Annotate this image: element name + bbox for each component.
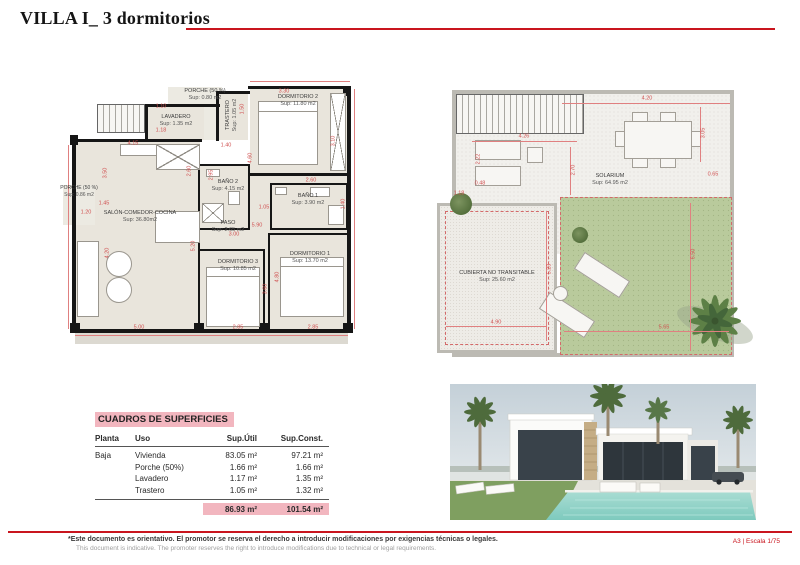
- room-label-porche-top: PORCHE (50 %) Sup: 0.80 m2: [184, 88, 225, 102]
- side-table: [527, 147, 543, 163]
- table-row: Trastero 1.05 m² 1.32 m²: [95, 485, 329, 497]
- chair: [632, 158, 648, 168]
- ground-floor-plan: 4.15 1.10 1.18 1.50 3.30 3.10 3.50 1.45 …: [60, 73, 382, 373]
- room-label-salon: SALÓN-COMEDOR-COCINA Sup: 36.80m2: [104, 210, 176, 224]
- dimension-line: [446, 326, 546, 327]
- wall-segment: [145, 104, 148, 142]
- dim-label: 1.40: [221, 143, 232, 149]
- col-header-const: Sup.Const.: [263, 434, 329, 443]
- dim-label: 2.22: [476, 154, 482, 165]
- title-rule: [186, 28, 775, 30]
- dim-label: 3.10: [331, 136, 337, 147]
- col-header-uso: Uso: [135, 434, 203, 443]
- sink: [275, 187, 287, 195]
- dim-label: 2.85: [308, 325, 319, 331]
- surfaces-table-title: CUADROS DE SUPERFICIES: [95, 412, 234, 427]
- wall-segment: [200, 249, 265, 251]
- dim-label: 5.00: [134, 325, 145, 331]
- pilaster: [259, 323, 269, 333]
- dim-label: 2.70: [571, 165, 577, 176]
- dimension-line: [690, 203, 691, 351]
- plan-sheet: VILLA I_ 3 dormitorios: [0, 0, 800, 565]
- chair: [660, 112, 676, 122]
- wall-segment: [248, 86, 350, 89]
- dim-label: 1.05: [259, 205, 270, 211]
- wall-segment: [248, 165, 250, 229]
- dimension-line: [354, 89, 355, 329]
- page-title: VILLA I_ 3 dormitorios: [20, 8, 210, 29]
- dim-label: 1.18: [454, 191, 465, 197]
- dim-label: 3.05: [701, 128, 707, 139]
- roof-stairs-hatch: [456, 94, 584, 134]
- sheet-info: A3 | Escala 1/75: [660, 538, 780, 545]
- room-label-porche-left: PORCHE (50 %) Sup: 0.86 m2: [60, 185, 98, 198]
- dimension-line: [546, 211, 547, 341]
- footer-rule: [8, 531, 792, 533]
- stairs-hatch: [97, 104, 145, 133]
- room-label-paso: PASO Sup: 2.65 m2: [212, 220, 245, 234]
- dim-label: 1.10: [156, 104, 167, 110]
- pilaster: [343, 323, 353, 333]
- room-label-solarium: SOLARIUM Sup: 64.95 m2: [592, 173, 628, 187]
- pilaster: [70, 323, 80, 333]
- palm-tree-icon: [667, 275, 762, 375]
- dim-label: 2.85: [233, 325, 244, 331]
- room-label-trastero: TRASTERO Sup: 1.05 m2: [225, 99, 239, 132]
- dim-label: 4.15: [128, 141, 139, 147]
- total-const: 101.54 m²: [263, 503, 329, 515]
- dim-label: 5.23: [547, 264, 553, 275]
- dim-label: 4.80: [275, 272, 281, 283]
- dim-label: 1.50: [240, 104, 246, 115]
- chair: [660, 158, 676, 168]
- wall-segment: [248, 173, 348, 176]
- disclaimer-en: This document is indicative. The promote…: [76, 545, 436, 552]
- disclaimer-es: *Este documento es orientativo. El promo…: [68, 536, 498, 543]
- outdoor-table: [624, 121, 692, 159]
- wall-segment: [200, 164, 250, 166]
- dim-label: 1.45: [99, 201, 110, 207]
- sofa: [475, 140, 521, 160]
- roof-plan: 4.20 3.05 0.65 4.26 2.22 2.70 0.48 1.18 …: [432, 85, 792, 370]
- col-header-planta: Planta: [95, 434, 135, 443]
- dim-label: 1.40: [341, 199, 347, 210]
- lounge-chair: [106, 277, 132, 303]
- dim-label: 0.48: [475, 181, 486, 187]
- dim-label: 4.60: [248, 153, 254, 164]
- wardrobe: [330, 93, 346, 171]
- dim-label: 0.65: [708, 172, 719, 178]
- table-body: Baja Vivienda 83.05 m² 97.21 m² Porche (…: [95, 447, 329, 500]
- dim-label: 4.20: [105, 248, 111, 259]
- dim-label: 3.60: [263, 284, 269, 295]
- table-row: Baja Vivienda 83.05 m² 97.21 m²: [95, 450, 329, 462]
- room-label-bano2: BAÑO 2 Sup: 4.15 m2: [212, 179, 245, 193]
- dim-label: 5.20: [191, 241, 197, 252]
- dim-label: 6.50: [691, 249, 697, 260]
- dim-label: 4.26: [519, 134, 530, 140]
- chair: [615, 131, 625, 147]
- dim-label: 2.60: [306, 178, 317, 184]
- wall-segment: [268, 233, 348, 235]
- dim-label: 3.50: [103, 168, 109, 179]
- room-label-bano1: BAÑO 1 Sup: 3.90 m2: [292, 193, 325, 207]
- dimension-line: [75, 335, 348, 336]
- room-label-cubierta: CUBIERTA NO TRANSITABLE Sup: 25.60 m2: [459, 270, 534, 284]
- villa-render: [450, 384, 756, 520]
- pilaster: [70, 135, 78, 145]
- round-table: [553, 286, 568, 301]
- dimension-line: [68, 145, 69, 329]
- dim-label: 4.20: [642, 96, 653, 102]
- wall-segment: [72, 139, 76, 333]
- bush: [572, 227, 588, 243]
- chair: [632, 112, 648, 122]
- wall-segment: [268, 233, 270, 330]
- dim-label: 5.90: [252, 223, 263, 229]
- dimension-line: [472, 141, 577, 142]
- table-row: Lavadero 1.17 m² 1.35 m²: [95, 473, 329, 485]
- dim-label: 1.20: [81, 210, 92, 216]
- table-header-row: Planta Uso Sup.Útil Sup.Const.: [95, 434, 329, 447]
- dimension-line: [564, 331, 729, 332]
- table-row: Porche (50%) 1.66 m² 1.66 m²: [95, 462, 329, 474]
- kitchen-island: [156, 144, 200, 170]
- room-label-dormitorio2: DORMITORIO 2 Sup: 11.80 m2: [278, 94, 318, 108]
- dimension-line: [250, 81, 350, 82]
- total-util: 86.93 m²: [203, 503, 263, 515]
- dim-label: 1.18: [156, 128, 167, 134]
- room-label-lavadero: LAVADERO Sup: 1.35 m2: [160, 114, 193, 128]
- col-header-util: Sup.Útil: [203, 434, 263, 443]
- dimension-line: [562, 103, 730, 104]
- table-total-row: 86.93 m² 101.54 m²: [95, 503, 329, 515]
- pilaster: [194, 323, 204, 333]
- room-label-dormitorio1: DORMITORIO 1 Sup: 13.70 m2: [290, 251, 330, 265]
- dim-label: 5.65: [659, 325, 670, 331]
- surfaces-table: CUADROS DE SUPERFICIES Planta Uso Sup.Út…: [95, 409, 329, 515]
- wall-segment: [198, 165, 200, 330]
- room-label-dormitorio3: DORMITORIO 3 Sup: 10.85 m2: [218, 259, 258, 273]
- dim-label: 4.90: [491, 320, 502, 326]
- dim-label: 2.60: [187, 166, 193, 177]
- sofa: [77, 241, 99, 317]
